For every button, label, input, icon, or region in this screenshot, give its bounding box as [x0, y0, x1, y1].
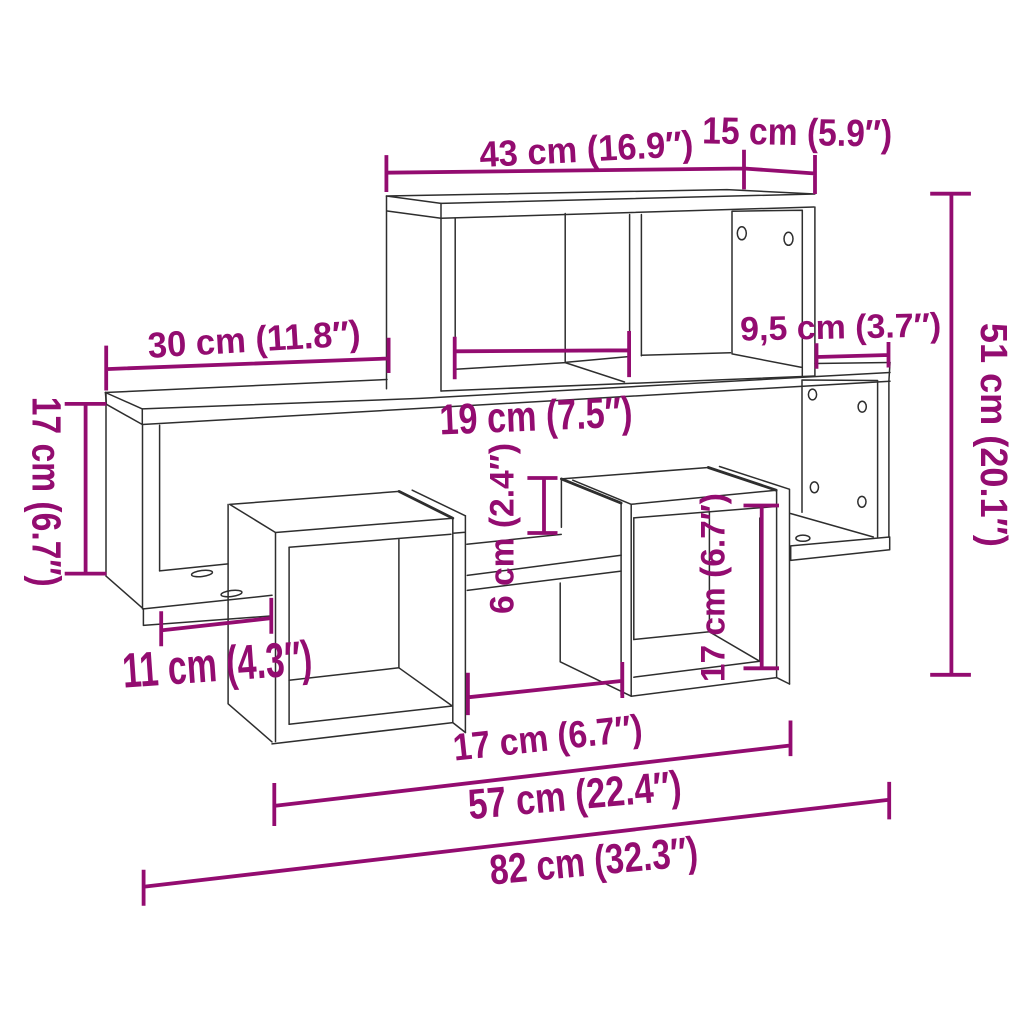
- svg-text:6 cm (2.4″): 6 cm (2.4″): [483, 443, 521, 614]
- svg-text:9,5 cm (3.7″): 9,5 cm (3.7″): [740, 306, 942, 348]
- svg-text:17 cm (6.7″): 17 cm (6.7″): [24, 397, 70, 587]
- svg-text:51 cm (20.1″): 51 cm (20.1″): [972, 323, 1014, 547]
- svg-text:17 cm (6.7″): 17 cm (6.7″): [695, 493, 733, 682]
- svg-text:15 cm (5.9″): 15 cm (5.9″): [702, 110, 893, 155]
- svg-text:19 cm (7.5″): 19 cm (7.5″): [439, 388, 634, 444]
